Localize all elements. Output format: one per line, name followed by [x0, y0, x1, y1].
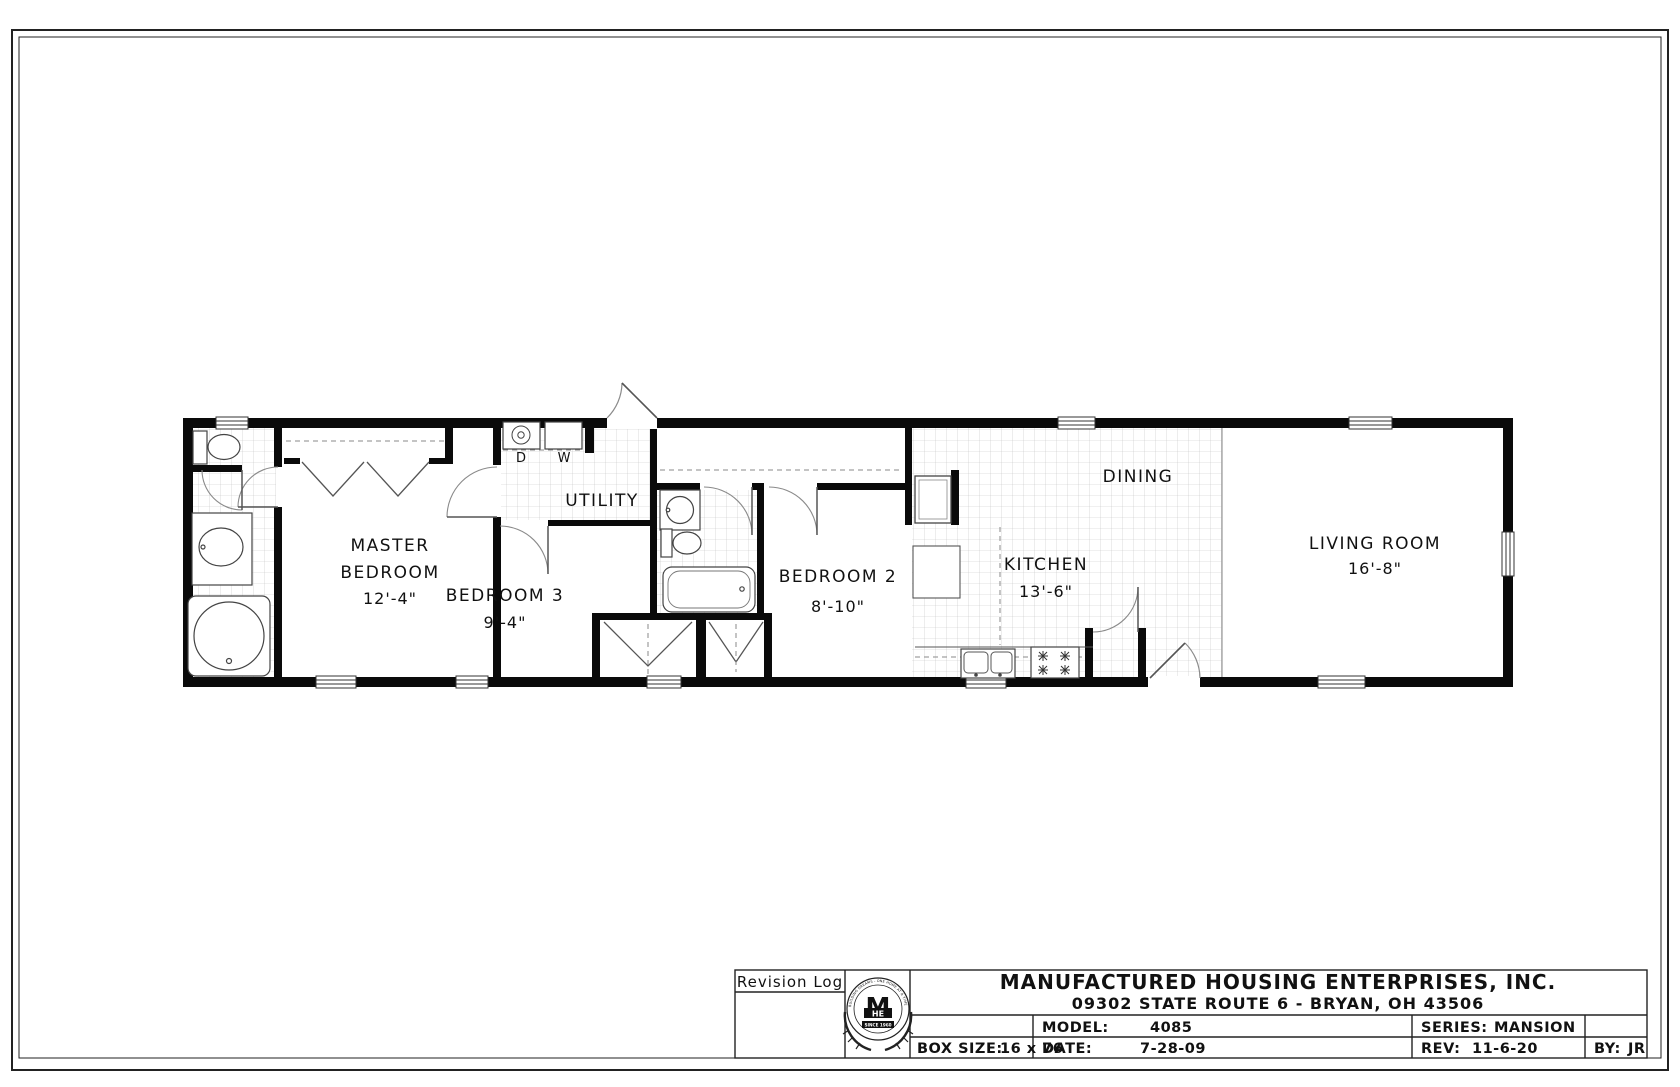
series-value: MANSION [1494, 1020, 1576, 1036]
rev-value: 11-6-20 [1472, 1041, 1538, 1057]
logo-he-text: HE [872, 1010, 884, 1019]
company-address: 09302 STATE ROUTE 6 - BRYAN, OH 43506 [1072, 994, 1485, 1013]
title-block: Revision Log MANUFACTURED HOUSING ENTERP… [735, 970, 1647, 1058]
series-label: SERIES: [1421, 1020, 1488, 1036]
living-room-label: LIVING ROOM [1309, 534, 1441, 554]
company-name: MANUFACTURED HOUSING ENTERPRISES, INC. [1000, 970, 1556, 994]
drawing-sheet: D W MASTER BEDROOM 12'-4" BEDROOM 3 9'-4… [0, 0, 1680, 1087]
sink1-basin [199, 528, 243, 566]
by-value: JR [1627, 1041, 1646, 1057]
tile-floors [192, 428, 1222, 677]
washer-box [545, 422, 582, 449]
logo-since-text: SINCE 1960 [864, 1023, 891, 1028]
company-logo-icon: BUILDING DREAMS - ONE HOME AT A TIME M H… [843, 978, 913, 1050]
sink2-basin [667, 497, 694, 524]
kitchen-counter-left [913, 546, 960, 598]
revision-log-header: Revision Log [737, 973, 843, 991]
washer-label: W [558, 451, 571, 466]
kitchen-dim: 13'-6" [1019, 582, 1073, 601]
bedroom3-label: BEDROOM 3 [446, 586, 564, 606]
date-value: 7-28-09 [1140, 1041, 1206, 1057]
toilet2-bowl [673, 532, 701, 554]
bedroom2-label: BEDROOM 2 [779, 567, 897, 587]
floor-plan-drawing: D W MASTER BEDROOM 12'-4" BEDROOM 3 9'-4… [0, 0, 1680, 1087]
range-stove [1031, 647, 1079, 678]
toilet1-bowl [208, 435, 240, 460]
master-bedroom-label-1: MASTER [350, 536, 429, 556]
master-bedroom-label-2: BEDROOM [340, 563, 439, 583]
utility-label: UTILITY [565, 491, 639, 511]
by-label: BY: [1594, 1041, 1621, 1057]
toilet2-tank [661, 529, 672, 557]
model-value: 4085 [1150, 1020, 1192, 1036]
master-bedroom-dim: 12'-4" [363, 589, 417, 608]
model-label: MODEL: [1042, 1020, 1109, 1036]
date-label: DATE: [1042, 1041, 1092, 1057]
dryer-label: D [516, 451, 526, 466]
box-size-label: BOX SIZE: [917, 1041, 1003, 1057]
refrigerator [915, 476, 951, 523]
bedroom3-dim: 9'-4" [484, 613, 527, 632]
kitchen-label: KITCHEN [1004, 555, 1088, 575]
toilet1-tank [193, 431, 207, 464]
living-room-dim: 16'-8" [1348, 559, 1402, 578]
bedroom2-dim: 8'-10" [811, 597, 865, 616]
rev-label: REV: [1421, 1041, 1460, 1057]
kitchen-door-opening [1148, 676, 1200, 688]
utility-door-opening [607, 417, 657, 429]
dining-label: DINING [1103, 467, 1174, 487]
